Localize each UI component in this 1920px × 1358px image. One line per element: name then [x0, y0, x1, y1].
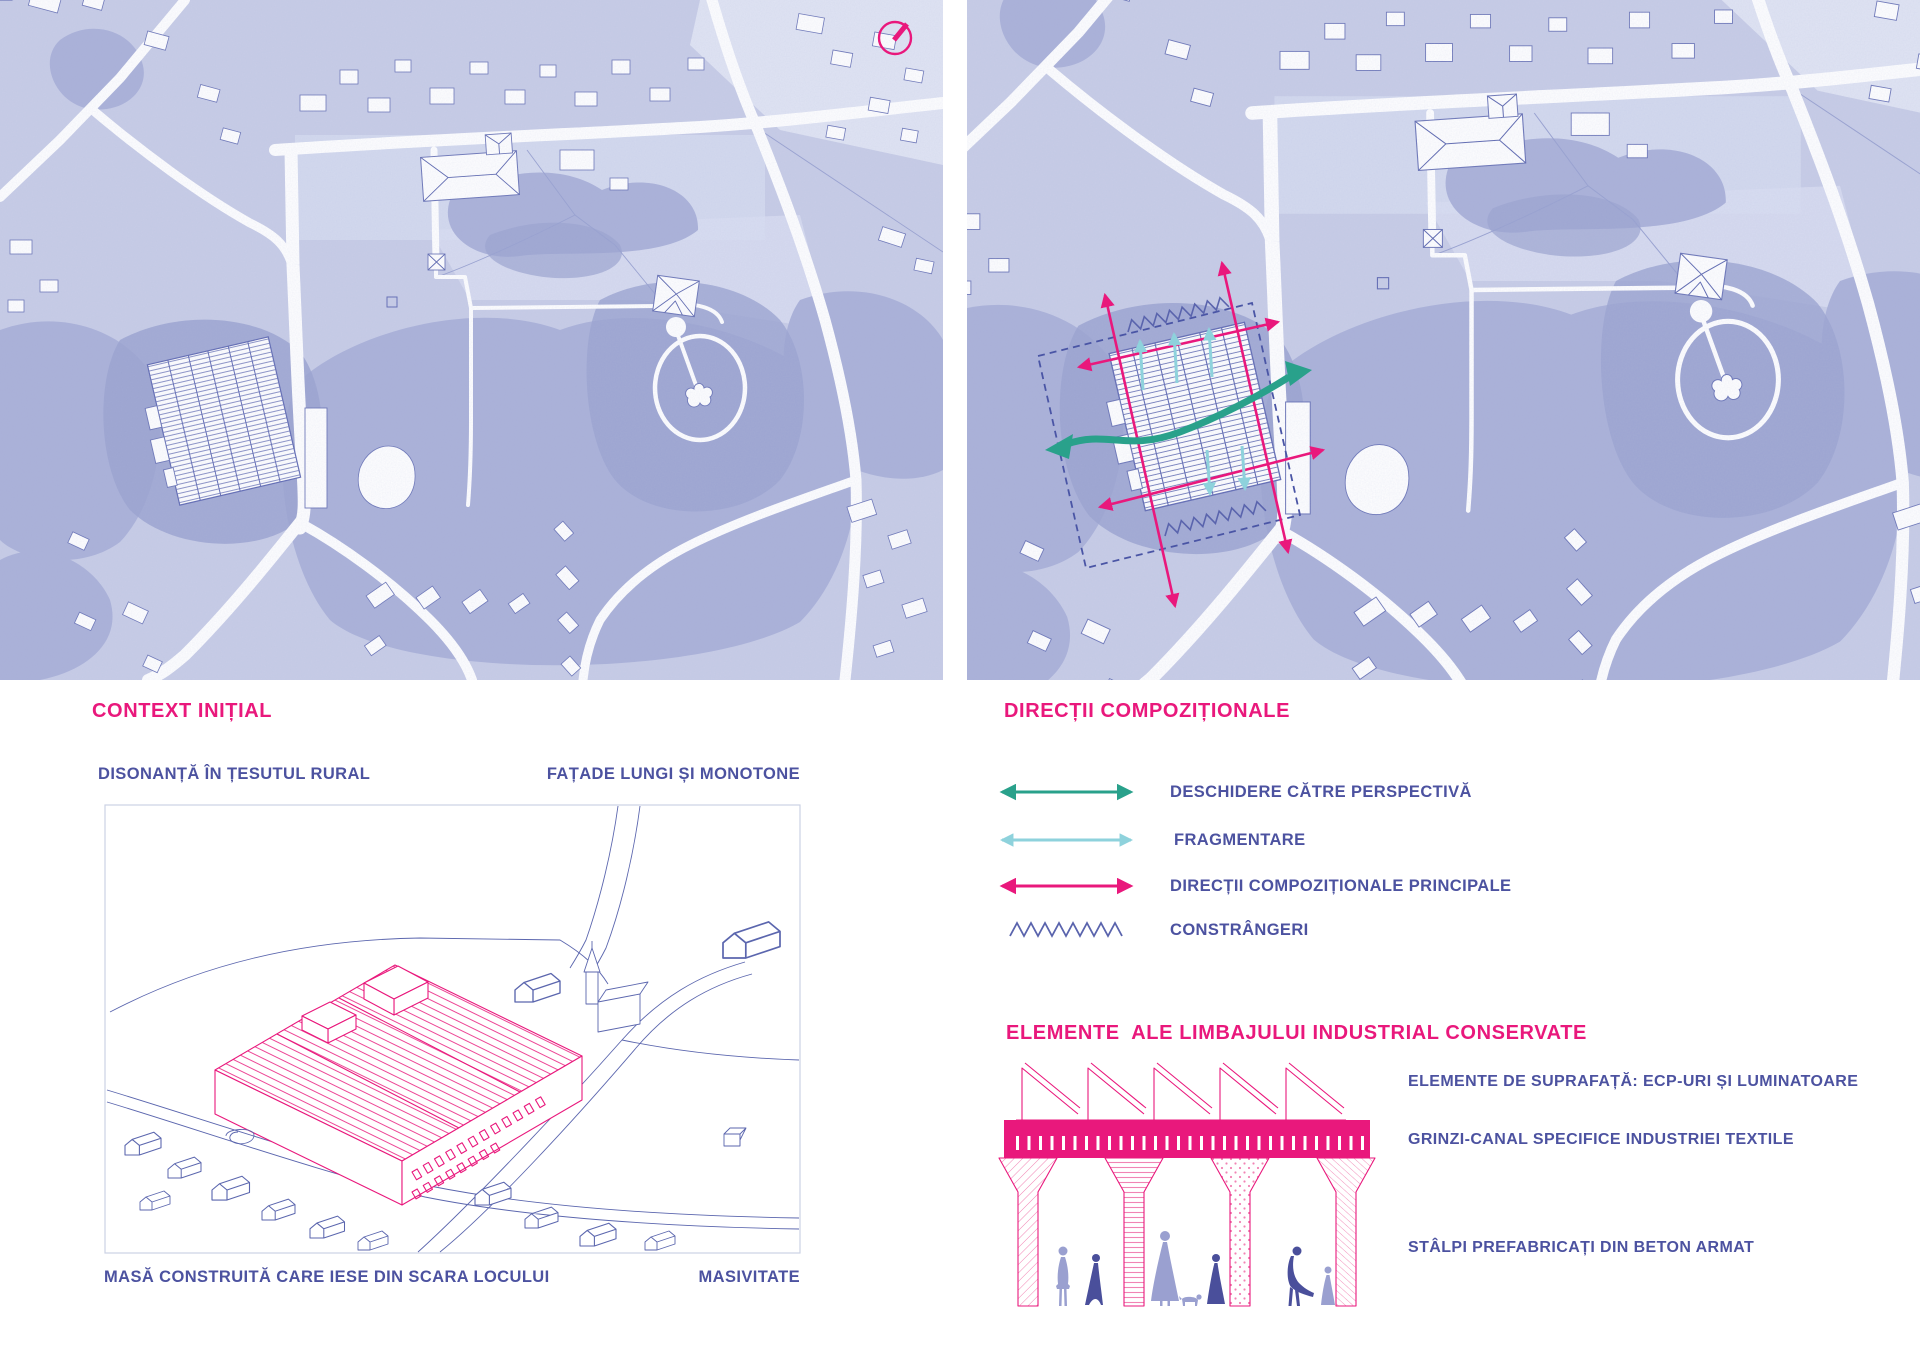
shed-roofs [1016, 1063, 1346, 1120]
context-panel-title: CONTEXT INIȚIAL [92, 700, 272, 723]
label-channel-beams: GRINZI-CANAL SPECIFICE INDUSTRIEI TEXTIL… [1408, 1131, 1794, 1149]
channel-beam [1004, 1120, 1370, 1158]
precast-columns [999, 1158, 1375, 1306]
industrial-section-drawing [999, 1063, 1375, 1306]
label-masa-construita: MASĂ CONSTRUITĂ CARE IESE DIN SCARA LOCU… [104, 1268, 550, 1287]
label-precast-columns: STÂLPI PREFABRICAȚI DIN BETON ARMAT [1408, 1239, 1754, 1257]
board-graphics [0, 0, 1920, 1358]
label-masivitate: MASIVITATE [600, 1268, 800, 1287]
site-map-initial [0, 0, 943, 695]
label-surface-elements: ELEMENTE DE SUPRAFAȚĂ: ECP-URI ȘI LUMINA… [1408, 1073, 1858, 1091]
legend-label-constraints: CONSTRÂNGERI [1170, 921, 1309, 940]
people-silhouettes [1056, 1231, 1335, 1306]
label-fatade: FAȚADE LUNGI ȘI MONOTONE [440, 765, 800, 784]
legend-label-fragmentation: FRAGMENTARE [1174, 831, 1306, 850]
presentation-board: CONTEXT INIȚIAL DISONANȚĂ ÎN ȚESUTUL RUR… [0, 0, 1920, 1358]
label-disonanta: DISONANȚĂ ÎN ȚESUTUL RURAL [98, 765, 370, 784]
directions-panel-title: DIRECȚII COMPOZIȚIONALE [1004, 700, 1290, 723]
legend-label-principal-directions: DIRECȚII COMPOZIȚIONALE PRINCIPALE [1170, 877, 1511, 896]
legend-symbols [1002, 792, 1131, 936]
site-map-compositional-directions [944, 0, 1920, 723]
legend-zigzag-constraints [1010, 923, 1122, 936]
elements-panel-title: ELEMENTE ALE LIMBAJULUI INDUSTRIAL CONSE… [1006, 1022, 1587, 1045]
legend-label-perspective: DESCHIDERE CĂTRE PERSPECTIVĂ [1170, 783, 1472, 802]
